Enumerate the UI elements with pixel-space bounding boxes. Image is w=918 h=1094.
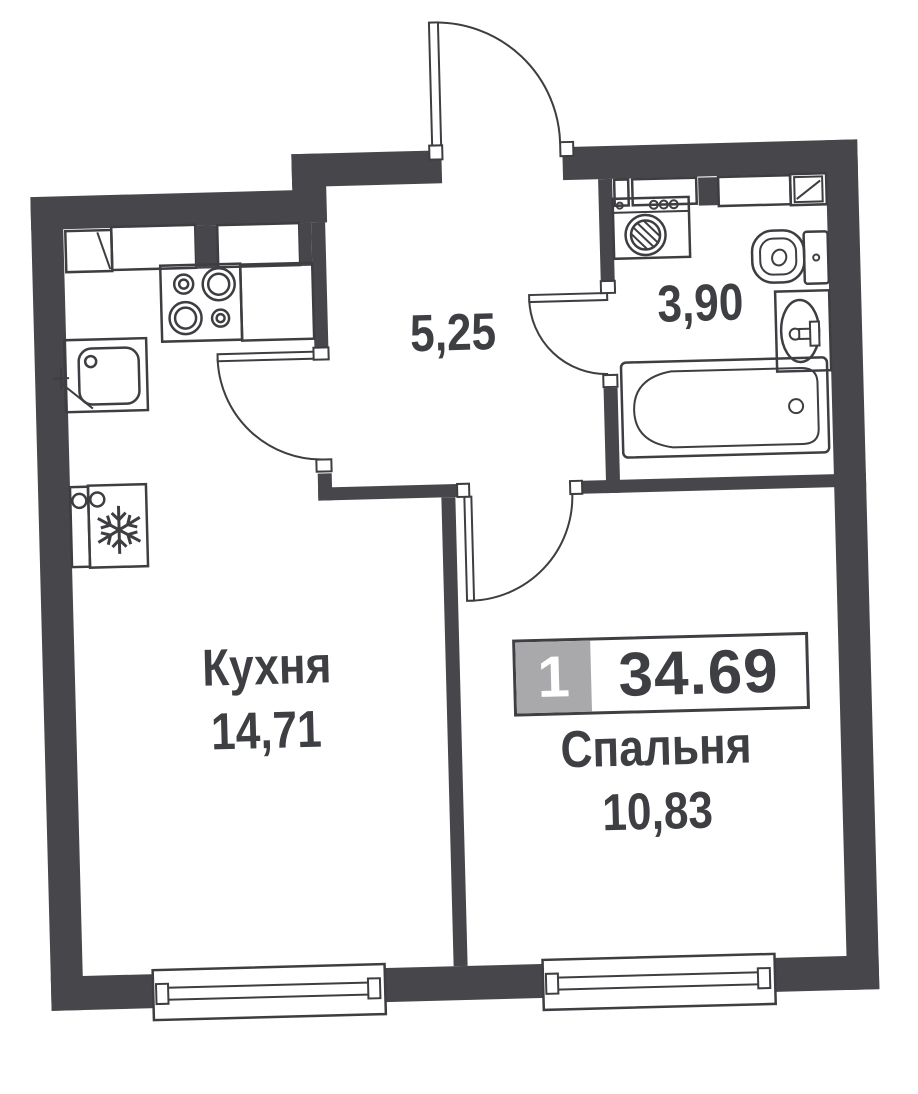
hall-area-label: 5,25 xyxy=(384,305,521,361)
bathroom-cabinets xyxy=(614,173,827,210)
bedroom-door xyxy=(457,481,585,601)
window-bedroom xyxy=(542,954,775,1010)
bathroom-door-leaf xyxy=(529,293,607,302)
bedroom-door-leaf xyxy=(464,497,474,601)
stove-icon xyxy=(160,264,242,342)
vent-shaft xyxy=(698,177,719,206)
snowflake-icon xyxy=(97,505,140,554)
rooms-count-badge: 1 xyxy=(515,641,592,714)
door-jamb xyxy=(457,484,469,497)
bathroom-door xyxy=(529,281,618,389)
kitchen-door xyxy=(217,347,331,474)
kitchen-door-leaf xyxy=(218,352,322,362)
kitchen-name-label: Кухня xyxy=(164,638,369,695)
entrance-door-leaf xyxy=(429,22,441,146)
door-jamb xyxy=(313,347,328,359)
vent-shaft xyxy=(195,225,218,269)
entrance-door xyxy=(426,19,574,160)
kitchen-counter xyxy=(240,263,314,341)
apartment-floorplan: 5,25 3,90 Кухня 14,71 Спальня 10,83 1 34… xyxy=(0,0,918,1094)
vent-shaft xyxy=(299,223,312,266)
door-jamb xyxy=(570,481,582,494)
bedroom-area-label: 10,83 xyxy=(555,783,760,840)
fridge-icon xyxy=(70,484,148,568)
apartment-summary-badge: 1 34.69 xyxy=(512,632,810,717)
door-jamb xyxy=(601,281,615,293)
bathroom-area-label: 3,90 xyxy=(632,276,769,332)
floorplan-canvas: 5,25 3,90 Кухня 14,71 Спальня 10,83 1 34… xyxy=(0,0,918,1082)
bathtub-icon xyxy=(621,357,829,457)
door-jamb xyxy=(429,145,442,159)
kitchen-area-label: 14,71 xyxy=(164,702,369,759)
door-jamb xyxy=(603,375,617,387)
bedroom-name-label: Спальня xyxy=(553,719,758,776)
total-area-value: 34.69 xyxy=(590,635,807,712)
door-jamb xyxy=(560,142,573,156)
kitchen-sink-icon xyxy=(52,338,148,412)
door-jamb xyxy=(316,459,331,471)
fixtures-layer xyxy=(0,0,918,1094)
window-kitchen xyxy=(153,964,386,1020)
